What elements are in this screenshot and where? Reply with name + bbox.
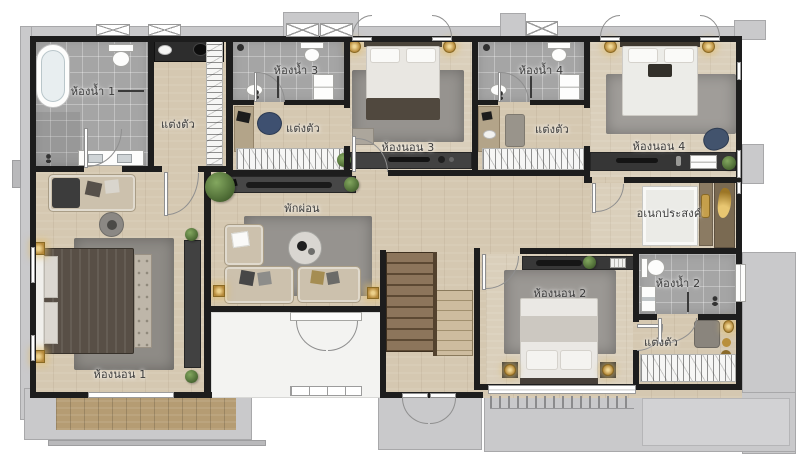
decor-bowl <box>438 156 445 163</box>
balcony-step <box>48 440 266 446</box>
wall <box>148 36 154 168</box>
wall <box>584 36 590 108</box>
console-tray <box>246 182 332 188</box>
sink-basin <box>117 154 132 163</box>
label-leader <box>530 76 532 98</box>
pillow <box>104 179 119 193</box>
room-label-dressing1: แต่งตัว <box>161 115 195 133</box>
room-label-dressing3: แต่งตัว <box>286 119 320 137</box>
bathtub <box>36 44 70 108</box>
plant-large <box>205 172 235 202</box>
wall <box>624 177 742 183</box>
double-bed <box>620 38 700 118</box>
pillow <box>628 48 658 63</box>
books <box>610 258 626 268</box>
vanity-sink <box>641 286 656 312</box>
person-figure <box>44 154 53 165</box>
wall <box>30 166 84 172</box>
console-tray <box>616 158 658 163</box>
void-window <box>290 386 362 396</box>
wall <box>698 314 742 320</box>
wall <box>30 36 742 42</box>
wall <box>226 170 352 176</box>
pillow <box>326 271 340 285</box>
shower-head <box>483 44 490 51</box>
room-label-bathroom2: ห้องน้ำ 2 <box>656 274 701 292</box>
window <box>31 335 35 361</box>
pillar-left <box>12 160 21 188</box>
wall <box>633 350 639 390</box>
wall <box>530 100 584 105</box>
phone <box>481 111 492 121</box>
toilet-bowl <box>551 48 567 62</box>
side-table <box>99 212 124 237</box>
terrace-railing <box>490 396 634 409</box>
wall <box>478 100 498 105</box>
room-label-multipurpose: อเนกประสงค์ <box>637 204 702 222</box>
label-leader <box>277 76 279 98</box>
wardrobe <box>236 148 344 170</box>
gold-decor <box>723 320 734 333</box>
gold-instrument <box>701 194 710 218</box>
wall <box>520 248 742 254</box>
window-band <box>488 385 636 394</box>
wall <box>284 100 344 105</box>
wall <box>478 170 590 176</box>
wall <box>474 248 480 390</box>
void-door-frame <box>290 312 362 321</box>
pillow <box>231 231 250 248</box>
double-bed <box>364 38 442 122</box>
pillow <box>44 302 58 344</box>
pillow <box>257 271 272 286</box>
window <box>737 150 741 178</box>
room-label-bedroom1: ห้องนอน 1 <box>94 365 147 383</box>
bed-bench-tufted <box>134 254 152 348</box>
sliding-door <box>88 392 174 398</box>
room-label-dressing4: แต่งตัว <box>535 120 569 138</box>
pillow <box>406 48 436 63</box>
pillow <box>85 181 103 198</box>
window <box>600 37 620 41</box>
wall <box>633 248 639 322</box>
wall <box>388 170 480 176</box>
pillow <box>239 270 255 286</box>
person-figure <box>710 296 720 308</box>
coffee-table <box>288 231 322 265</box>
wall <box>584 177 592 183</box>
dressing-chair <box>694 320 720 348</box>
wall <box>204 166 211 398</box>
floor-plan: ห้องน้ำ 1 แต่งตัว ห้องน้ำ 3 แต่งตัว ห้อง… <box>0 0 800 462</box>
wall <box>122 166 162 172</box>
floor-lamp <box>213 285 225 297</box>
pillow <box>664 48 694 63</box>
bed-tray <box>648 64 672 77</box>
decor-bowl <box>308 248 315 255</box>
sofa-cushion <box>52 178 80 208</box>
window <box>737 62 741 80</box>
bed-blanket <box>520 316 598 342</box>
window-awning <box>526 21 558 36</box>
decor-bowl <box>297 241 307 251</box>
staircase-lower-flight <box>436 290 473 356</box>
room-label-bathroom4: ห้องน้ำ 4 <box>519 61 564 79</box>
room-label-bedroom4: ห้องนอน 4 <box>633 137 686 155</box>
wardrobe <box>640 354 736 382</box>
room-label-bathroom3: ห้องน้ำ 3 <box>274 61 319 79</box>
staircase-upper-flight <box>386 252 436 352</box>
room-label-dressing2: แต่งตัว <box>644 333 678 351</box>
tv-console <box>184 240 201 368</box>
wardrobe <box>206 38 223 166</box>
wall <box>736 36 742 390</box>
shower-head <box>237 44 244 51</box>
balcony-deck <box>56 398 236 430</box>
wall <box>639 314 657 320</box>
double-bed <box>520 298 598 386</box>
window-awning <box>96 24 130 36</box>
plant <box>185 228 198 241</box>
pillow <box>526 350 558 370</box>
decor-bowl <box>107 220 117 230</box>
nightstand-lamp <box>602 364 614 376</box>
floor-lamp <box>367 287 379 299</box>
toilet-bowl <box>304 48 320 62</box>
room-label-bedroom3: ห้องนอน 3 <box>382 138 435 156</box>
nightstand-lamp <box>504 364 516 376</box>
label-leader <box>118 90 144 92</box>
pillow <box>310 270 325 285</box>
wall <box>472 36 478 176</box>
window <box>700 37 720 41</box>
shower-area <box>34 112 80 166</box>
window-swing-arc <box>432 15 452 37</box>
plant <box>722 156 736 170</box>
decor-bottle <box>676 156 681 166</box>
window <box>432 37 452 41</box>
window-swing-arc <box>700 15 720 37</box>
wall <box>380 250 386 398</box>
pouf-navy <box>257 112 282 135</box>
console-tray <box>388 157 430 162</box>
window-awning <box>286 23 319 37</box>
window-bay <box>735 264 746 302</box>
plant <box>185 370 198 383</box>
pillar-right-mid <box>742 144 764 184</box>
window <box>352 37 372 41</box>
window <box>737 182 741 194</box>
plant <box>344 177 359 192</box>
counter-sink <box>158 45 172 55</box>
window-awning <box>320 23 353 37</box>
double-bed <box>34 246 152 356</box>
room-label-bathroom1: ห้องน้ำ 1 <box>71 82 116 100</box>
wall <box>344 146 350 176</box>
wall <box>344 36 350 108</box>
terrace-panel <box>642 398 790 446</box>
pillow <box>560 350 592 370</box>
window-swing-arc <box>600 15 620 37</box>
bathtub-basin <box>41 50 65 102</box>
decor-oval <box>483 130 496 139</box>
room-label-living: พักผ่อน <box>284 199 319 217</box>
toilet-bowl <box>112 51 130 67</box>
window-awning <box>148 24 181 36</box>
console-tray <box>536 260 582 266</box>
stair-handrail <box>433 252 437 356</box>
roof-block-top-b <box>500 13 526 37</box>
wall <box>232 100 254 105</box>
room-label-bedroom2: ห้องนอน 2 <box>534 284 587 302</box>
dressing-bench <box>505 114 525 147</box>
window <box>31 247 35 283</box>
decor-bowl <box>449 157 454 162</box>
label-leader <box>687 292 689 312</box>
gold-decor <box>722 338 731 347</box>
bed-throw <box>366 98 440 120</box>
wardrobe <box>482 148 584 170</box>
plant <box>583 256 596 269</box>
pillow <box>370 48 400 63</box>
printer <box>690 155 717 169</box>
pillow <box>44 256 58 298</box>
